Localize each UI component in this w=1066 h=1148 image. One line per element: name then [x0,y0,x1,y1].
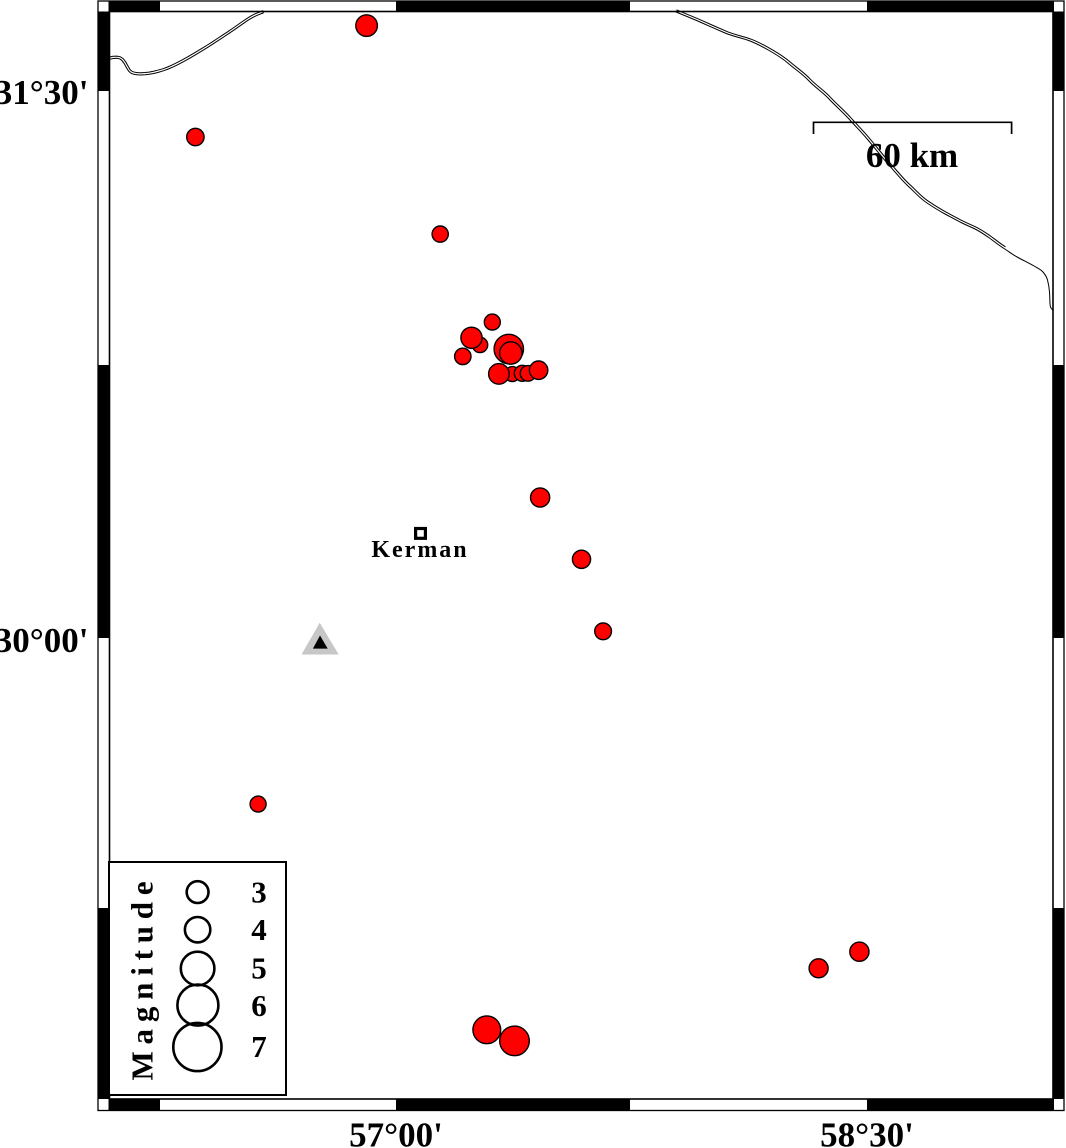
svg-text:Kerman: Kerman [371,537,468,563]
svg-text:5: 5 [251,950,267,985]
svg-text:3: 3 [251,875,267,910]
svg-text:31°30': 31°30' [0,73,89,112]
svg-text:58°30': 58°30' [820,1116,914,1148]
svg-text:7: 7 [251,1029,267,1064]
svg-text:4: 4 [251,912,267,947]
svg-text:Magnitude: Magnitude [124,875,159,1081]
svg-text:30°00': 30°00' [0,621,89,660]
svg-text:6: 6 [251,988,267,1023]
svg-text:60 km: 60 km [866,136,958,175]
svg-text:57°00': 57°00' [349,1116,443,1148]
